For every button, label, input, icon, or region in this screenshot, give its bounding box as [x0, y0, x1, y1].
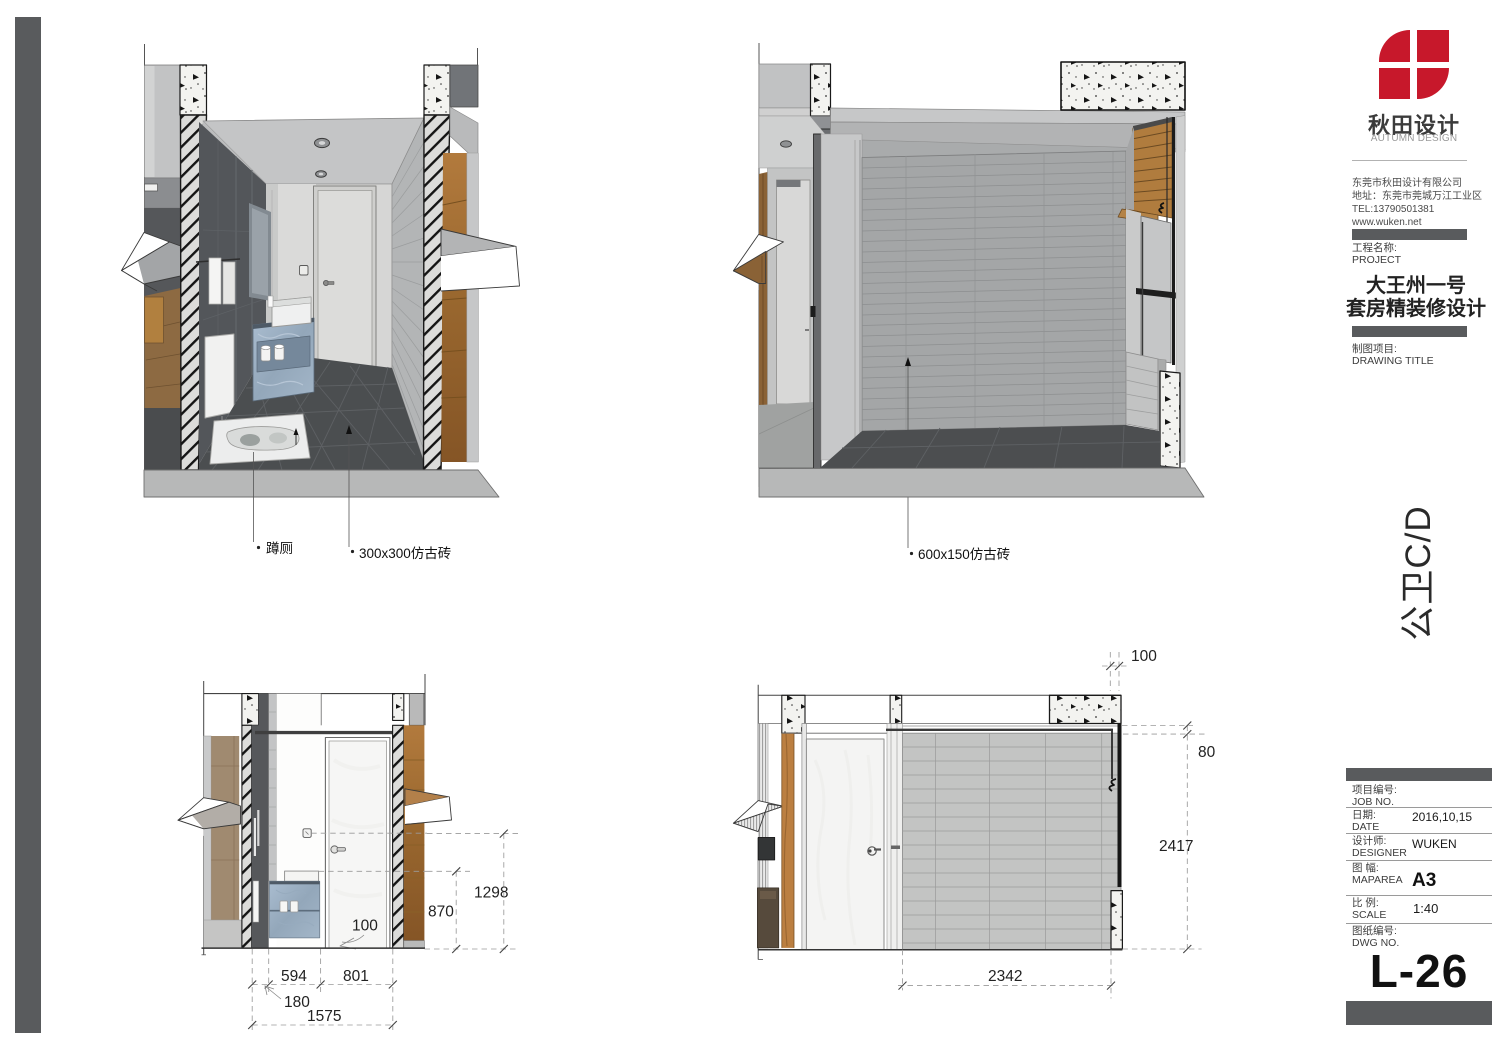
- svg-text:870: 870: [428, 904, 454, 921]
- svg-text:594: 594: [281, 968, 307, 985]
- svg-text:1298: 1298: [474, 885, 508, 902]
- svg-text:2342: 2342: [988, 968, 1022, 985]
- svg-text:2417: 2417: [1159, 838, 1193, 855]
- svg-text:801: 801: [343, 968, 369, 985]
- svg-text:蹲厕: 蹲厕: [266, 541, 293, 556]
- svg-text:100: 100: [1131, 648, 1157, 665]
- svg-text:600x150仿古砖: 600x150仿古砖: [918, 547, 1010, 562]
- svg-text:300x300仿古砖: 300x300仿古砖: [359, 546, 451, 561]
- svg-text:1575: 1575: [307, 1008, 341, 1025]
- svg-text:100: 100: [352, 918, 378, 935]
- svg-text:80: 80: [1198, 744, 1216, 761]
